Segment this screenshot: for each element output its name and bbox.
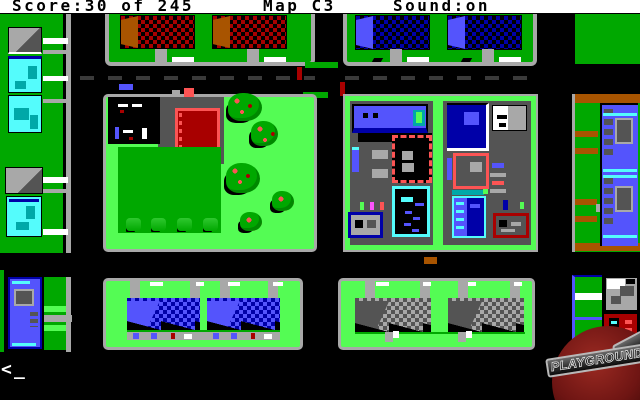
door [26, 206, 35, 219]
car-blue [119, 84, 133, 90]
window [16, 222, 29, 230]
driveway [458, 278, 468, 298]
roof-detail [620, 286, 634, 296]
roof-side [213, 16, 230, 48]
parking-lot [108, 97, 160, 144]
grass-strip [0, 270, 4, 352]
blue-office-building [352, 104, 428, 133]
driveway-marker [228, 282, 240, 286]
hedge-bar [575, 131, 598, 137]
tree [251, 121, 278, 146]
roof-side [121, 16, 138, 48]
roof-side [448, 16, 465, 49]
window-band [603, 175, 637, 178]
sign-light [611, 321, 617, 324]
driveway [43, 99, 68, 103]
driveway-marker [264, 57, 286, 62]
car-blue [352, 147, 359, 172]
red-trim-building [392, 135, 432, 183]
door-inner [416, 112, 422, 123]
path [385, 332, 393, 342]
driveway-marker [407, 57, 429, 62]
roof-shadow [127, 321, 200, 330]
parked-car [264, 334, 272, 339]
window [15, 81, 26, 89]
window [402, 163, 414, 172]
prompt-symbol: < [1, 361, 12, 379]
bush [177, 218, 192, 231]
driveway-marker [150, 282, 163, 286]
window [405, 211, 412, 214]
window-band [603, 113, 637, 116]
roof-stripe [9, 199, 39, 202]
bush [203, 218, 218, 231]
window-band [603, 169, 637, 172]
driveway-marker [499, 57, 521, 62]
blue-apartment-building [207, 298, 280, 330]
driveway-marker [172, 57, 194, 62]
window [14, 108, 29, 120]
grass-strip [44, 277, 66, 350]
hedge-strip [575, 94, 640, 103]
sign [401, 197, 413, 202]
sign-light [483, 189, 488, 194]
hedge-bar [44, 306, 66, 312]
window [373, 113, 378, 118]
cyan-building [6, 196, 42, 237]
window [499, 220, 507, 227]
score-text: Score:30 of 245 [12, 0, 194, 12]
red-roof-house [212, 15, 287, 49]
car-orange [424, 257, 437, 264]
blue-store-building [452, 196, 486, 238]
hedge-line [355, 332, 525, 334]
driveway [365, 278, 375, 298]
window [413, 217, 420, 220]
parked-car [184, 334, 192, 339]
car-blue [492, 163, 504, 168]
blue-roof-house [355, 15, 430, 50]
roof-detail [626, 279, 635, 284]
roof-detail [611, 296, 621, 304]
driveway [43, 177, 68, 183]
car-blue [447, 158, 452, 180]
parked-car [251, 333, 255, 339]
person [380, 202, 384, 210]
person [520, 202, 524, 209]
hedge-bar [575, 216, 597, 222]
game-screen: Score:30 of 245 Map C3 Sound:on [0, 0, 640, 400]
driveway [155, 49, 167, 65]
rooftop-unit [372, 150, 388, 159]
white-building [492, 105, 527, 131]
roof-side [356, 16, 373, 49]
driveway-marker [273, 282, 283, 286]
driveway [43, 76, 68, 81]
window [470, 162, 482, 172]
parked-car [115, 127, 119, 139]
blue-roof-house [447, 15, 522, 50]
window [615, 118, 633, 144]
window [402, 151, 413, 160]
violet-apartment-building [600, 103, 638, 246]
roof-shadow [448, 323, 524, 332]
parked-car [231, 333, 237, 339]
trim [12, 343, 36, 346]
lane-markings [80, 76, 315, 80]
driveway-marker [514, 282, 522, 286]
map-label: Map C3 [263, 0, 336, 12]
gray-apartment-building [355, 298, 431, 332]
violet-building [8, 277, 42, 349]
right-green-block [575, 14, 640, 64]
trim [12, 281, 30, 284]
window [511, 222, 521, 226]
window [470, 204, 480, 208]
cyan-building [8, 95, 42, 133]
dark-red-trim-building [493, 213, 529, 238]
window [404, 223, 411, 226]
parked-car [129, 137, 133, 140]
driveway [220, 278, 230, 298]
driveway-marker [423, 282, 431, 286]
gray-building [605, 277, 638, 311]
driveway-marker [393, 331, 399, 338]
driveway [190, 278, 200, 298]
red-trim-building [453, 153, 489, 189]
roof-shadow [207, 321, 280, 330]
door [28, 66, 37, 79]
driveway-marker [468, 282, 476, 286]
cyan-building [8, 56, 42, 93]
window [456, 218, 464, 221]
window [363, 113, 368, 118]
red-roof-house [120, 15, 195, 49]
door [413, 110, 425, 126]
car-green [305, 62, 338, 68]
parked-car [142, 128, 147, 139]
hedge-bar [44, 325, 66, 331]
driveway [268, 278, 278, 298]
parked-car [118, 104, 128, 107]
light [625, 320, 632, 324]
driveway [247, 49, 259, 65]
blue-apartment-building [127, 298, 200, 330]
window [355, 220, 363, 228]
driveway [43, 50, 68, 54]
cyan-trim-building [392, 186, 430, 237]
path [458, 332, 466, 342]
window [412, 229, 419, 232]
car-red [297, 67, 302, 80]
driveway [420, 278, 430, 298]
balconies [30, 312, 38, 327]
parked-car [123, 130, 133, 133]
window [464, 112, 479, 125]
door [30, 115, 38, 129]
lane-markings [345, 76, 535, 80]
tree [226, 163, 260, 193]
person [360, 202, 364, 210]
parked-car [151, 333, 157, 339]
gray-apartment-building [448, 298, 524, 332]
driveway [510, 278, 520, 298]
tree [228, 93, 262, 121]
driveway [482, 49, 494, 65]
hedge-bar [575, 199, 597, 205]
window [499, 123, 506, 127]
driveway [43, 189, 68, 193]
window [367, 220, 376, 228]
parked-car [133, 333, 139, 339]
text-input-line[interactable]: < _ [0, 358, 200, 384]
driveway [130, 278, 140, 298]
window [615, 186, 633, 212]
path [44, 315, 72, 322]
driveway-marker [376, 282, 389, 286]
window [415, 203, 424, 206]
tree [272, 191, 294, 211]
person [370, 202, 374, 210]
rooftop-unit [372, 169, 388, 178]
window [456, 210, 464, 213]
car-gray [490, 173, 506, 177]
sound-status-text: Sound:on [393, 0, 490, 12]
car-gray [490, 189, 506, 193]
driveway [43, 229, 68, 235]
gray-roof-building [5, 167, 43, 194]
divider [575, 317, 602, 320]
driveway-marker [196, 282, 204, 286]
parked-car [120, 110, 124, 113]
tree [240, 212, 262, 231]
car-blue [503, 200, 508, 210]
hedge-bar [575, 148, 598, 154]
bush [126, 218, 141, 231]
window [497, 115, 507, 119]
window-band [603, 235, 637, 238]
driveway [390, 49, 402, 65]
input-cursor: _ [14, 361, 25, 379]
parked-car [213, 333, 219, 339]
parking-strip [127, 332, 280, 340]
parked-car [171, 333, 175, 339]
balconies [604, 178, 613, 228]
path [575, 293, 602, 300]
driveway [43, 38, 68, 44]
gray-roof-building [8, 27, 42, 54]
window [456, 226, 464, 229]
gray-shop-building [348, 212, 383, 238]
parked-car [132, 104, 142, 107]
blue-tower-building [447, 103, 489, 151]
awning [452, 190, 484, 195]
downtown-walkway [433, 99, 443, 247]
window [14, 289, 34, 306]
car-red [492, 181, 504, 185]
sign [501, 229, 515, 232]
status-bar: Score:30 of 245 Map C3 Sound:on [0, 0, 640, 13]
driveway-marker [466, 331, 472, 338]
bush [151, 218, 166, 231]
window [456, 202, 464, 205]
